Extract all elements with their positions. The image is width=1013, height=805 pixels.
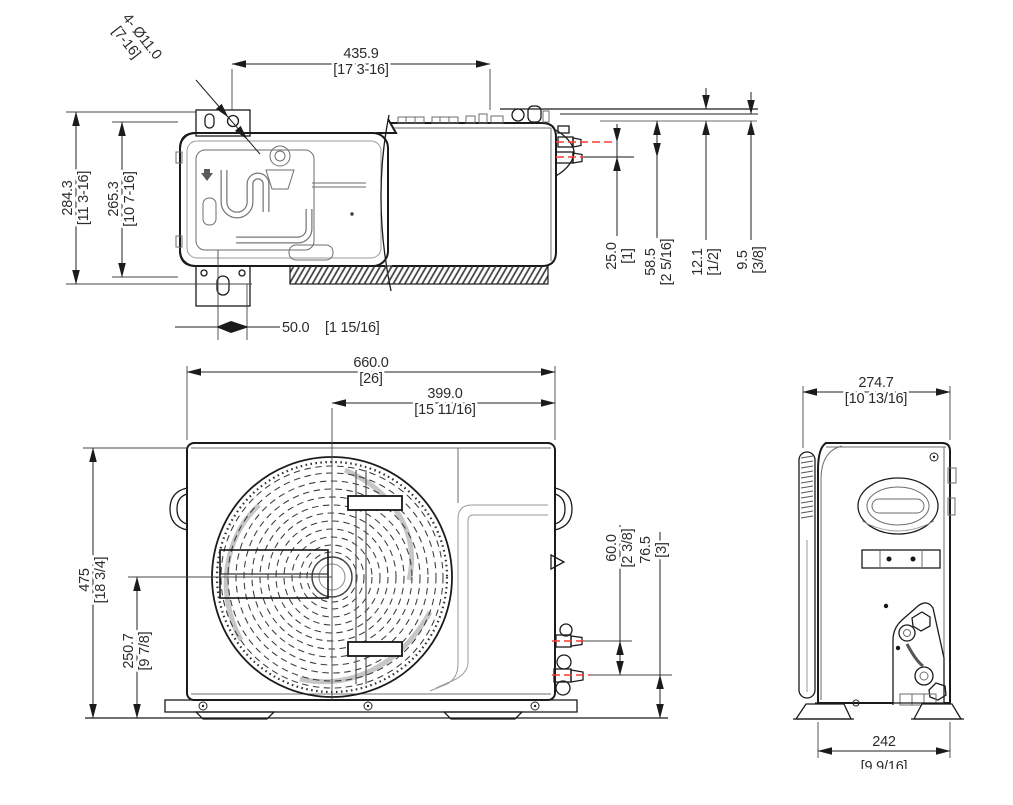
side-bracket <box>862 550 940 568</box>
dim-gap-a-inch: [1/2] <box>706 248 722 275</box>
dim-top-depth-inner-mm: 265.3 <box>106 181 122 216</box>
image-crop-mask <box>840 769 930 789</box>
dim-fan-offset-inch: [15 11/16] <box>414 402 475 418</box>
dim-top-depth-inch: [11 3-16] <box>76 171 92 225</box>
panel-tab <box>551 555 564 569</box>
front-view <box>85 408 668 719</box>
dim-front-width: 660.0 [26] <box>187 355 555 440</box>
service-valves-front <box>554 624 583 695</box>
dim-gap-a-mm: 12.1 <box>690 248 706 276</box>
side-view <box>793 443 964 719</box>
dim-foot-offset: 50.0 [1 15/16] <box>175 250 380 340</box>
dim-front-valve-height-inch: [3] <box>654 542 670 558</box>
dim-foot-offset-inch: [1 15/16] <box>325 320 380 336</box>
top-view-cabinet-right <box>390 123 556 266</box>
fan-guard-strip <box>799 452 815 698</box>
dim-valve-gap-mm: 25.0 <box>604 242 620 270</box>
dim-side-depth: 274.7 [10 13/16] <box>803 375 950 448</box>
dim-valve-offset-mm: 58.5 <box>643 248 659 276</box>
dim-front-width-inch: [26] <box>359 371 382 387</box>
top-view-internal-detail <box>187 141 381 260</box>
dim-front-valve-gap-inch: [2 3/8] <box>620 529 636 568</box>
dim-top-width: 435.9 [17 3-16] <box>232 46 490 110</box>
dim-fan-height-inch: [9 7/8] <box>137 632 153 671</box>
arrow-down-icon <box>201 169 213 181</box>
dim-side-feet-span: 242 [9 9/16] <box>818 722 950 789</box>
dim-top-depth-inner-inch: [10 7-16] <box>122 171 138 226</box>
base-plate <box>165 700 577 719</box>
dimensions-front-view: 660.0 [26] 399.0 [15 11/16] 475 [18 3/4]… <box>77 355 672 718</box>
dim-fan-offset-mm: 399.0 <box>427 386 462 402</box>
dim-gap-a: 12.1 [1/2] <box>690 88 722 276</box>
handle-left-icon <box>170 488 187 530</box>
outdoor-unit-drawing: 4- Ø11.0 [7-16] 435.9 [17 3-16] 284.3 [1… <box>0 0 1013 805</box>
dim-foot-offset-mm: 50.0 <box>282 320 310 336</box>
dim-side-feet-mm: 242 <box>872 734 896 750</box>
dim-front-height: 475 [18 3/4] <box>77 448 187 718</box>
dim-front-height-mm: 475 <box>77 568 93 592</box>
dim-front-valve-height: 76.5 [3] <box>638 532 670 718</box>
dim-top-depth-mm: 284.3 <box>60 180 76 215</box>
dim-front-width-mm: 660.0 <box>353 355 388 371</box>
side-handle-icon <box>858 478 938 534</box>
dim-fan-offset: 399.0 [15 11/16] <box>332 386 555 418</box>
dim-side-depth-mm: 274.7 <box>858 375 893 391</box>
dim-top-depth-inner: 265.3 [10 7-16] <box>106 122 178 277</box>
pipe-duct-outline <box>430 505 548 691</box>
dim-front-valve-height-mm: 76.5 <box>638 536 654 564</box>
handle-right-icon <box>555 488 572 530</box>
dimensions-top-view: 4- Ø11.0 [7-16] 435.9 [17 3-16] 284.3 [1… <box>60 11 767 340</box>
dim-valve-gap-inch: [1] <box>620 248 636 264</box>
dim-valve-offset-inch: [2 5/16] <box>659 239 675 286</box>
technical-drawing-canvas: 4- Ø11.0 [7-16] 435.9 [17 3-16] 284.3 [1… <box>0 0 1013 805</box>
side-feet <box>793 703 964 719</box>
dim-gap-b: 9.5 [3/8] <box>735 92 767 274</box>
dim-fan-height-mm: 250.7 <box>121 633 137 668</box>
front-cabinet-outline <box>187 443 555 700</box>
service-valves-top <box>556 126 582 176</box>
dimensions-side-view: 274.7 [10 13/16] 242 [9 9/16] <box>803 375 950 789</box>
dim-top-width-inch: [17 3-16] <box>333 62 388 78</box>
dim-gap-b-mm: 9.5 <box>735 250 751 270</box>
side-valve-assembly <box>884 603 946 705</box>
dim-front-valve-gap-mm: 60.0 <box>604 534 620 562</box>
condenser-fins <box>290 266 548 284</box>
dim-gap-b-inch: [3/8] <box>751 246 767 273</box>
dim-side-depth-inch: [10 13/16] <box>845 391 908 407</box>
dim-front-height-inch: [18 3/4] <box>93 557 109 604</box>
dim-fan-height: 250.7 [9 7/8] <box>121 577 153 718</box>
dim-valve-gap: 25.0 [1] <box>604 124 636 270</box>
mounting-bracket-bottom <box>196 266 250 306</box>
dim-top-width-mm: 435.9 <box>343 46 378 62</box>
dim-valve-offset: 58.5 [2 5/16] <box>643 121 675 285</box>
